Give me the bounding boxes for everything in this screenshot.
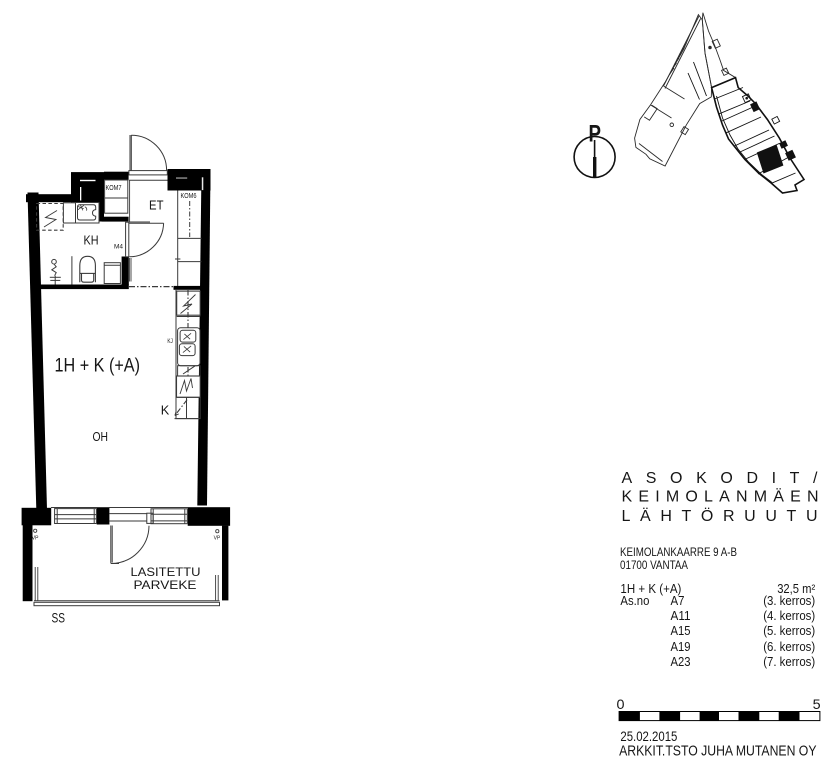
svg-text:5: 5 <box>813 696 821 712</box>
svg-text:A23: A23 <box>671 655 691 669</box>
svg-text:K: K <box>161 404 170 418</box>
svg-text:As.no: As.no <box>620 594 649 608</box>
svg-text:VP: VP <box>214 536 221 542</box>
svg-text:1H + K (+A): 1H + K (+A) <box>55 355 141 377</box>
svg-text:(7. kerros): (7. kerros) <box>763 655 815 669</box>
svg-text:(5. kerros): (5. kerros) <box>763 624 815 638</box>
svg-text:ARKKIT.TSTO JUHA MUTANEN OY: ARKKIT.TSTO JUHA MUTANEN OY <box>619 742 816 759</box>
svg-text:KJ: KJ <box>167 338 173 345</box>
svg-text:A15: A15 <box>671 624 691 638</box>
svg-text:KOM6: KOM6 <box>181 191 197 200</box>
svg-text:VP: VP <box>32 536 39 542</box>
svg-text:(4. kerros): (4. kerros) <box>763 609 815 623</box>
svg-text:M4: M4 <box>114 243 123 250</box>
svg-text:01700 VANTAA: 01700 VANTAA <box>620 560 688 572</box>
svg-text:A7: A7 <box>671 594 685 608</box>
svg-text:LASITETTU: LASITETTU <box>131 565 201 579</box>
svg-text:KH: KH <box>84 234 99 248</box>
svg-text:(6. kerros): (6. kerros) <box>763 640 815 654</box>
svg-text:A19: A19 <box>671 640 691 654</box>
svg-text:(3. kerros): (3. kerros) <box>763 594 815 608</box>
svg-text:KEIMOLANKAARRE 9 A-B: KEIMOLANKAARRE 9 A-B <box>620 547 737 559</box>
svg-text:0: 0 <box>617 696 625 712</box>
svg-text:OH: OH <box>93 430 109 444</box>
svg-text:ET: ET <box>149 199 164 213</box>
svg-text:KOM7: KOM7 <box>106 183 122 192</box>
svg-text:PARVEKE: PARVEKE <box>134 578 197 592</box>
svg-text:SS: SS <box>52 611 66 626</box>
svg-text:A11: A11 <box>671 609 691 623</box>
